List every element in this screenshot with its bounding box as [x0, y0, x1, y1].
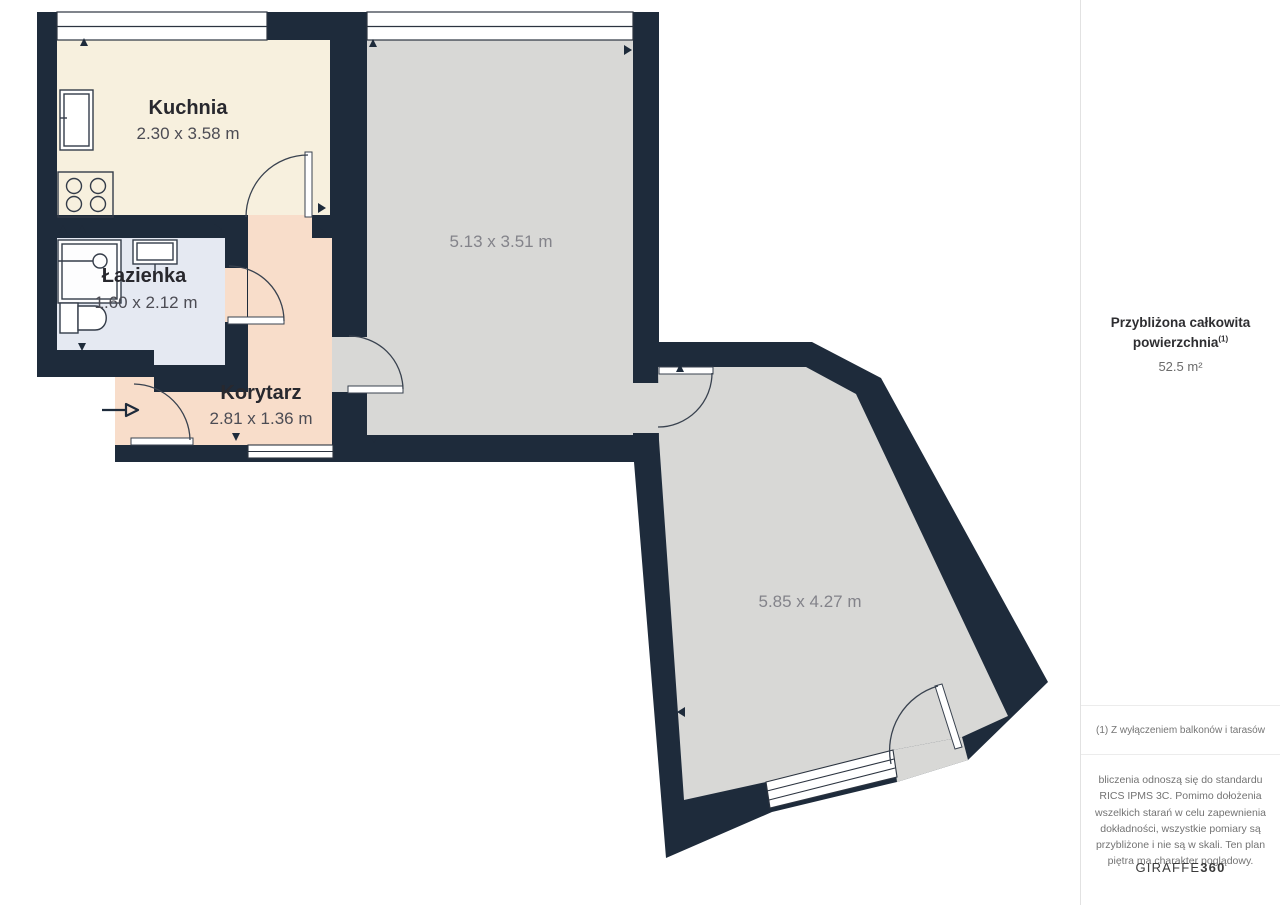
kitchen-sink-icon	[60, 90, 93, 150]
room1-room2-doorway-floor	[633, 383, 659, 433]
kuchnia-dims: 2.30 x 3.58 m	[136, 124, 239, 143]
total-area-title: Przybliżona całkowita powierzchnia(1)	[1081, 313, 1280, 352]
footnote-text: (1) Z wyłączeniem balkonów i tarasów	[1096, 725, 1265, 736]
korytarz-label: Korytarz	[220, 382, 301, 404]
floorplan-svg: Kuchnia 2.30 x 3.58 m Łazienka 1.60 x 2.…	[0, 0, 1080, 905]
lazienka-label: Łazienka	[102, 265, 187, 287]
kuchnia-label: Kuchnia	[149, 97, 229, 119]
disclaimer: bliczenia odnoszą się do standardu RICS …	[1090, 772, 1271, 870]
corridor-window	[248, 445, 333, 458]
bathroom-doorway-floor	[225, 268, 247, 322]
footnote: (1) Z wyłączeniem balkonów i tarasów	[1081, 705, 1280, 755]
room1-dims: 5.13 x 3.51 m	[449, 232, 552, 251]
lazienka-dims: 1.60 x 2.12 m	[94, 293, 197, 312]
kitchen-window	[57, 12, 267, 40]
korytarz-dims: 2.81 x 1.36 m	[209, 409, 312, 428]
sidebar: Przybliżona całkowita powierzchnia(1) 52…	[1080, 0, 1280, 905]
total-area-value: 52.5 m²	[1081, 359, 1280, 374]
total-area-title-line2: powierzchnia	[1133, 335, 1219, 350]
room1-window	[367, 12, 633, 40]
brand-regular: GIRAFFE	[1135, 860, 1200, 875]
kitchen-doorway-floor	[248, 215, 312, 238]
total-area-title-line1: Przybliżona całkowita	[1111, 315, 1251, 330]
room2-dims: 5.85 x 4.27 m	[758, 592, 861, 611]
corridor-room1-doorway-floor	[332, 337, 367, 392]
floorplan-canvas: Kuchnia 2.30 x 3.58 m Łazienka 1.60 x 2.…	[0, 0, 1080, 905]
footnote-marker: (1)	[1218, 334, 1228, 343]
brand-bold: 360	[1200, 860, 1225, 875]
brand-logo: GIRAFFE360	[1081, 860, 1280, 875]
